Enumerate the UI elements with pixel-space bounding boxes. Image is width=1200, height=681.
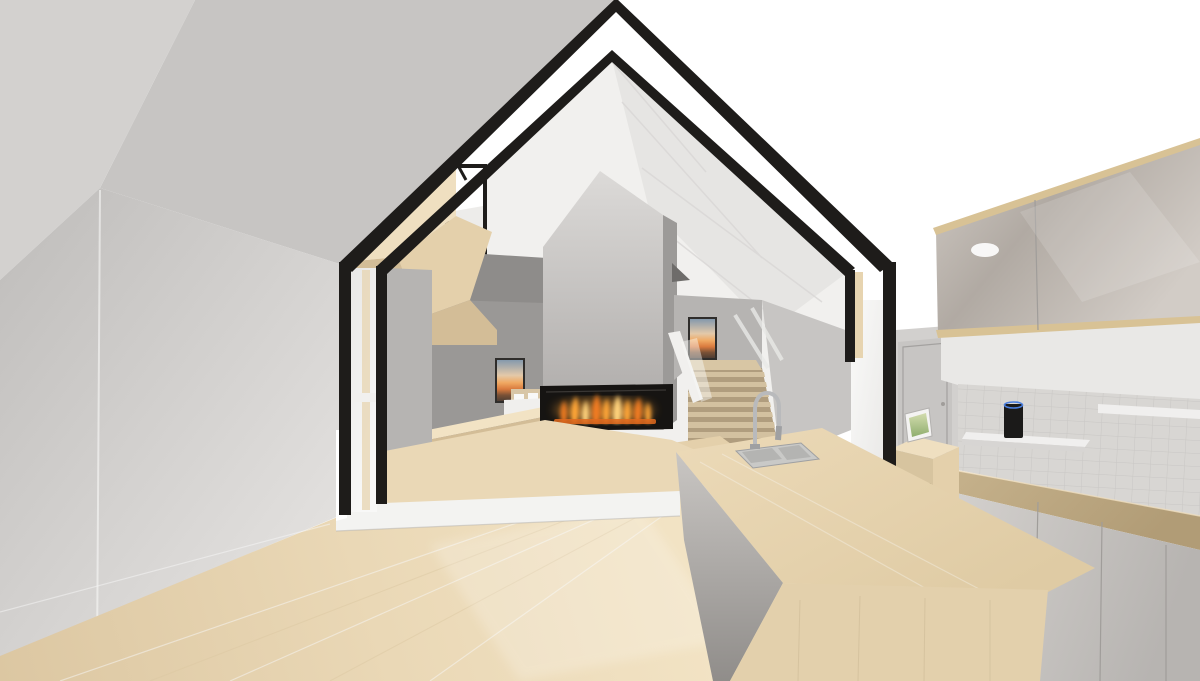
island-wood-end bbox=[730, 583, 1048, 681]
bedside-lamp bbox=[522, 399, 526, 409]
window-rail bbox=[347, 393, 377, 402]
tablet-frame[interactable] bbox=[905, 408, 932, 442]
door-handle bbox=[941, 402, 945, 406]
ember-bed bbox=[554, 419, 656, 424]
inner-post-right bbox=[845, 270, 855, 362]
scene bbox=[0, 0, 1200, 681]
right-window-wood-trim bbox=[855, 272, 863, 358]
outer-post-right bbox=[883, 262, 896, 468]
outer-post-left bbox=[339, 262, 351, 515]
window-wood-mullion bbox=[362, 270, 370, 510]
render-canvas bbox=[0, 0, 1200, 681]
inner-post-left bbox=[376, 266, 387, 504]
smart-speaker[interactable] bbox=[1004, 402, 1023, 438]
light-reflection-spot bbox=[971, 243, 999, 257]
